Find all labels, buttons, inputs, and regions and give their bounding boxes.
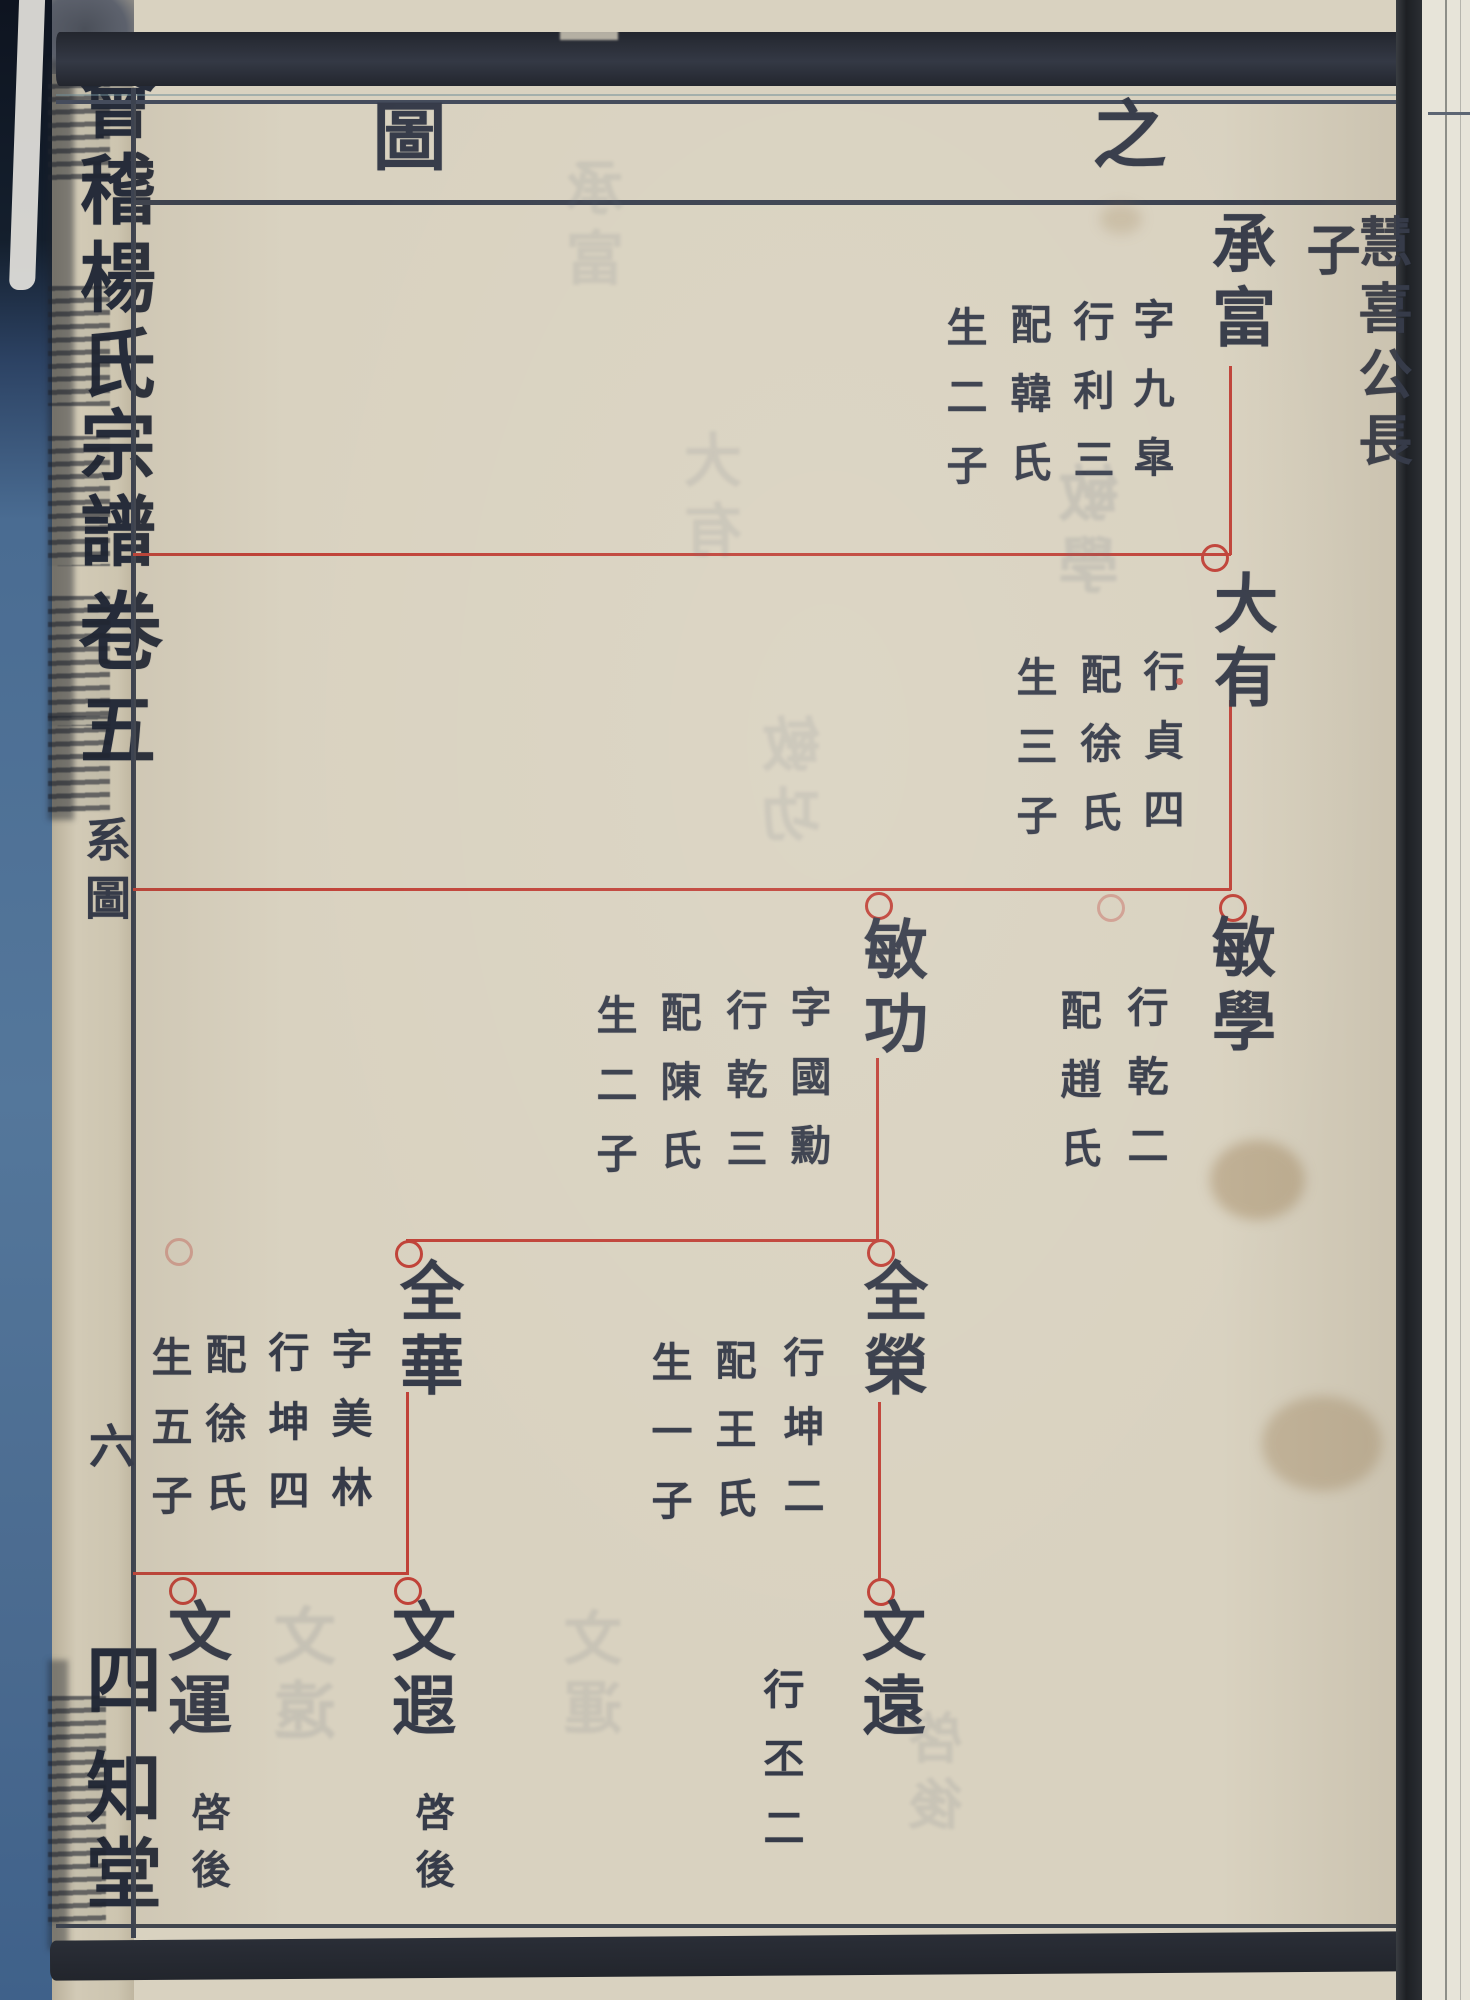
ancestor-lineage-suffix: 子 bbox=[1290, 222, 1369, 288]
tree-rail-gen4 bbox=[406, 1239, 878, 1242]
tree-stem-dayou bbox=[1229, 700, 1232, 890]
person-detail: 行乾二 bbox=[1114, 986, 1174, 1193]
ghost-bleedthrough-text: 承富 bbox=[558, 158, 642, 298]
person-detail: 字國勳 bbox=[777, 986, 837, 1193]
age-spot bbox=[1262, 1396, 1382, 1491]
ghost-bleedthrough-text: 敏功 bbox=[754, 714, 838, 854]
spine-ink-smear bbox=[48, 1660, 68, 1950]
spine-section-label: 系圖 bbox=[72, 816, 138, 932]
person-detail: 生三子 bbox=[1003, 656, 1063, 863]
person-name-quanrong: 全榮 bbox=[844, 1258, 936, 1406]
top-faint-line bbox=[56, 94, 1422, 96]
header-title-char-left: 圖 bbox=[350, 98, 457, 172]
margin-page-number: 六 bbox=[76, 1422, 142, 1468]
age-spot bbox=[1100, 204, 1142, 234]
tree-node-circle-faint bbox=[1097, 894, 1125, 922]
person-name-chengfu: 承富 bbox=[1192, 210, 1284, 358]
top-rule-line bbox=[56, 100, 1422, 104]
person-name-minxue: 敏學 bbox=[1192, 914, 1284, 1062]
person-name-mingong: 敏功 bbox=[844, 916, 936, 1064]
ghost-bleedthrough-text: 敏學 bbox=[1050, 462, 1137, 606]
person-name-wenxia: 文遐 bbox=[372, 1598, 464, 1746]
top-border-notch bbox=[560, 30, 618, 40]
person-name-wenyun: 文運 bbox=[148, 1598, 240, 1746]
tree-node-circle-dayou bbox=[1201, 544, 1229, 572]
red-ink-dot bbox=[1176, 678, 1183, 685]
tree-rail-gen3 bbox=[133, 888, 1231, 891]
person-detail: 生一子 bbox=[638, 1341, 698, 1548]
person-name-dayou: 大有 bbox=[1194, 570, 1286, 718]
person-detail: 行丕二 bbox=[750, 1668, 810, 1875]
person-detail: 行坤四 bbox=[255, 1331, 315, 1538]
person-detail: 行坤二 bbox=[770, 1336, 830, 1543]
left-frame-line bbox=[131, 88, 136, 1938]
tree-stem-mingong bbox=[876, 1058, 879, 1241]
person-note: 啓後 bbox=[180, 1792, 236, 1906]
ghost-bleedthrough-text: 啓後 bbox=[900, 1710, 979, 1842]
header-separator-line bbox=[134, 200, 1400, 205]
bottom-border-band bbox=[50, 1931, 1402, 1980]
tree-rail-gen5 bbox=[133, 1572, 409, 1575]
tree-stem-quanrong bbox=[878, 1402, 881, 1580]
tree-stem-quanhua bbox=[406, 1392, 409, 1574]
tree-stem-chengfu bbox=[1229, 366, 1232, 555]
person-detail: 配陳氏 bbox=[647, 991, 707, 1198]
next-page-edge-line bbox=[1445, 0, 1447, 2000]
person-detail: 字美林 bbox=[318, 1328, 378, 1535]
person-detail: 配徐氏 bbox=[192, 1333, 252, 1540]
person-name-quanhua: 全華 bbox=[380, 1258, 472, 1406]
next-page-edge-line bbox=[1460, 0, 1461, 2000]
top-border-band bbox=[56, 32, 1400, 86]
age-spot bbox=[1210, 1140, 1305, 1220]
person-detail: 生二子 bbox=[933, 306, 993, 513]
person-detail: 配趙氏 bbox=[1047, 989, 1107, 1196]
ghost-bleedthrough-text: 大有 bbox=[676, 430, 760, 570]
ghost-bleedthrough-text: 文遠 bbox=[266, 1604, 356, 1752]
person-detail: 配韓氏 bbox=[997, 303, 1057, 510]
bottom-rule-line bbox=[56, 1924, 1400, 1928]
ghost-bleedthrough-text: 文運 bbox=[556, 1608, 640, 1748]
person-detail: 配徐氏 bbox=[1067, 653, 1127, 860]
person-detail: 生二子 bbox=[583, 994, 643, 1201]
header-title-char-right: 之 bbox=[1070, 96, 1177, 170]
person-note: 啓後 bbox=[404, 1792, 460, 1906]
person-detail: 生五子 bbox=[138, 1336, 198, 1543]
tree-node-circle-faint bbox=[165, 1238, 193, 1266]
next-page-top-rule bbox=[1428, 112, 1470, 115]
person-detail: 行乾三 bbox=[713, 989, 773, 1196]
spine-ink-smear bbox=[48, 60, 74, 820]
person-detail: 配王氏 bbox=[702, 1339, 762, 1546]
scanned-genealogy-page: 會 稽 楊 氏 宗 譜 卷 五 系圖 四 知 堂 之 圖 bbox=[0, 0, 1470, 2000]
